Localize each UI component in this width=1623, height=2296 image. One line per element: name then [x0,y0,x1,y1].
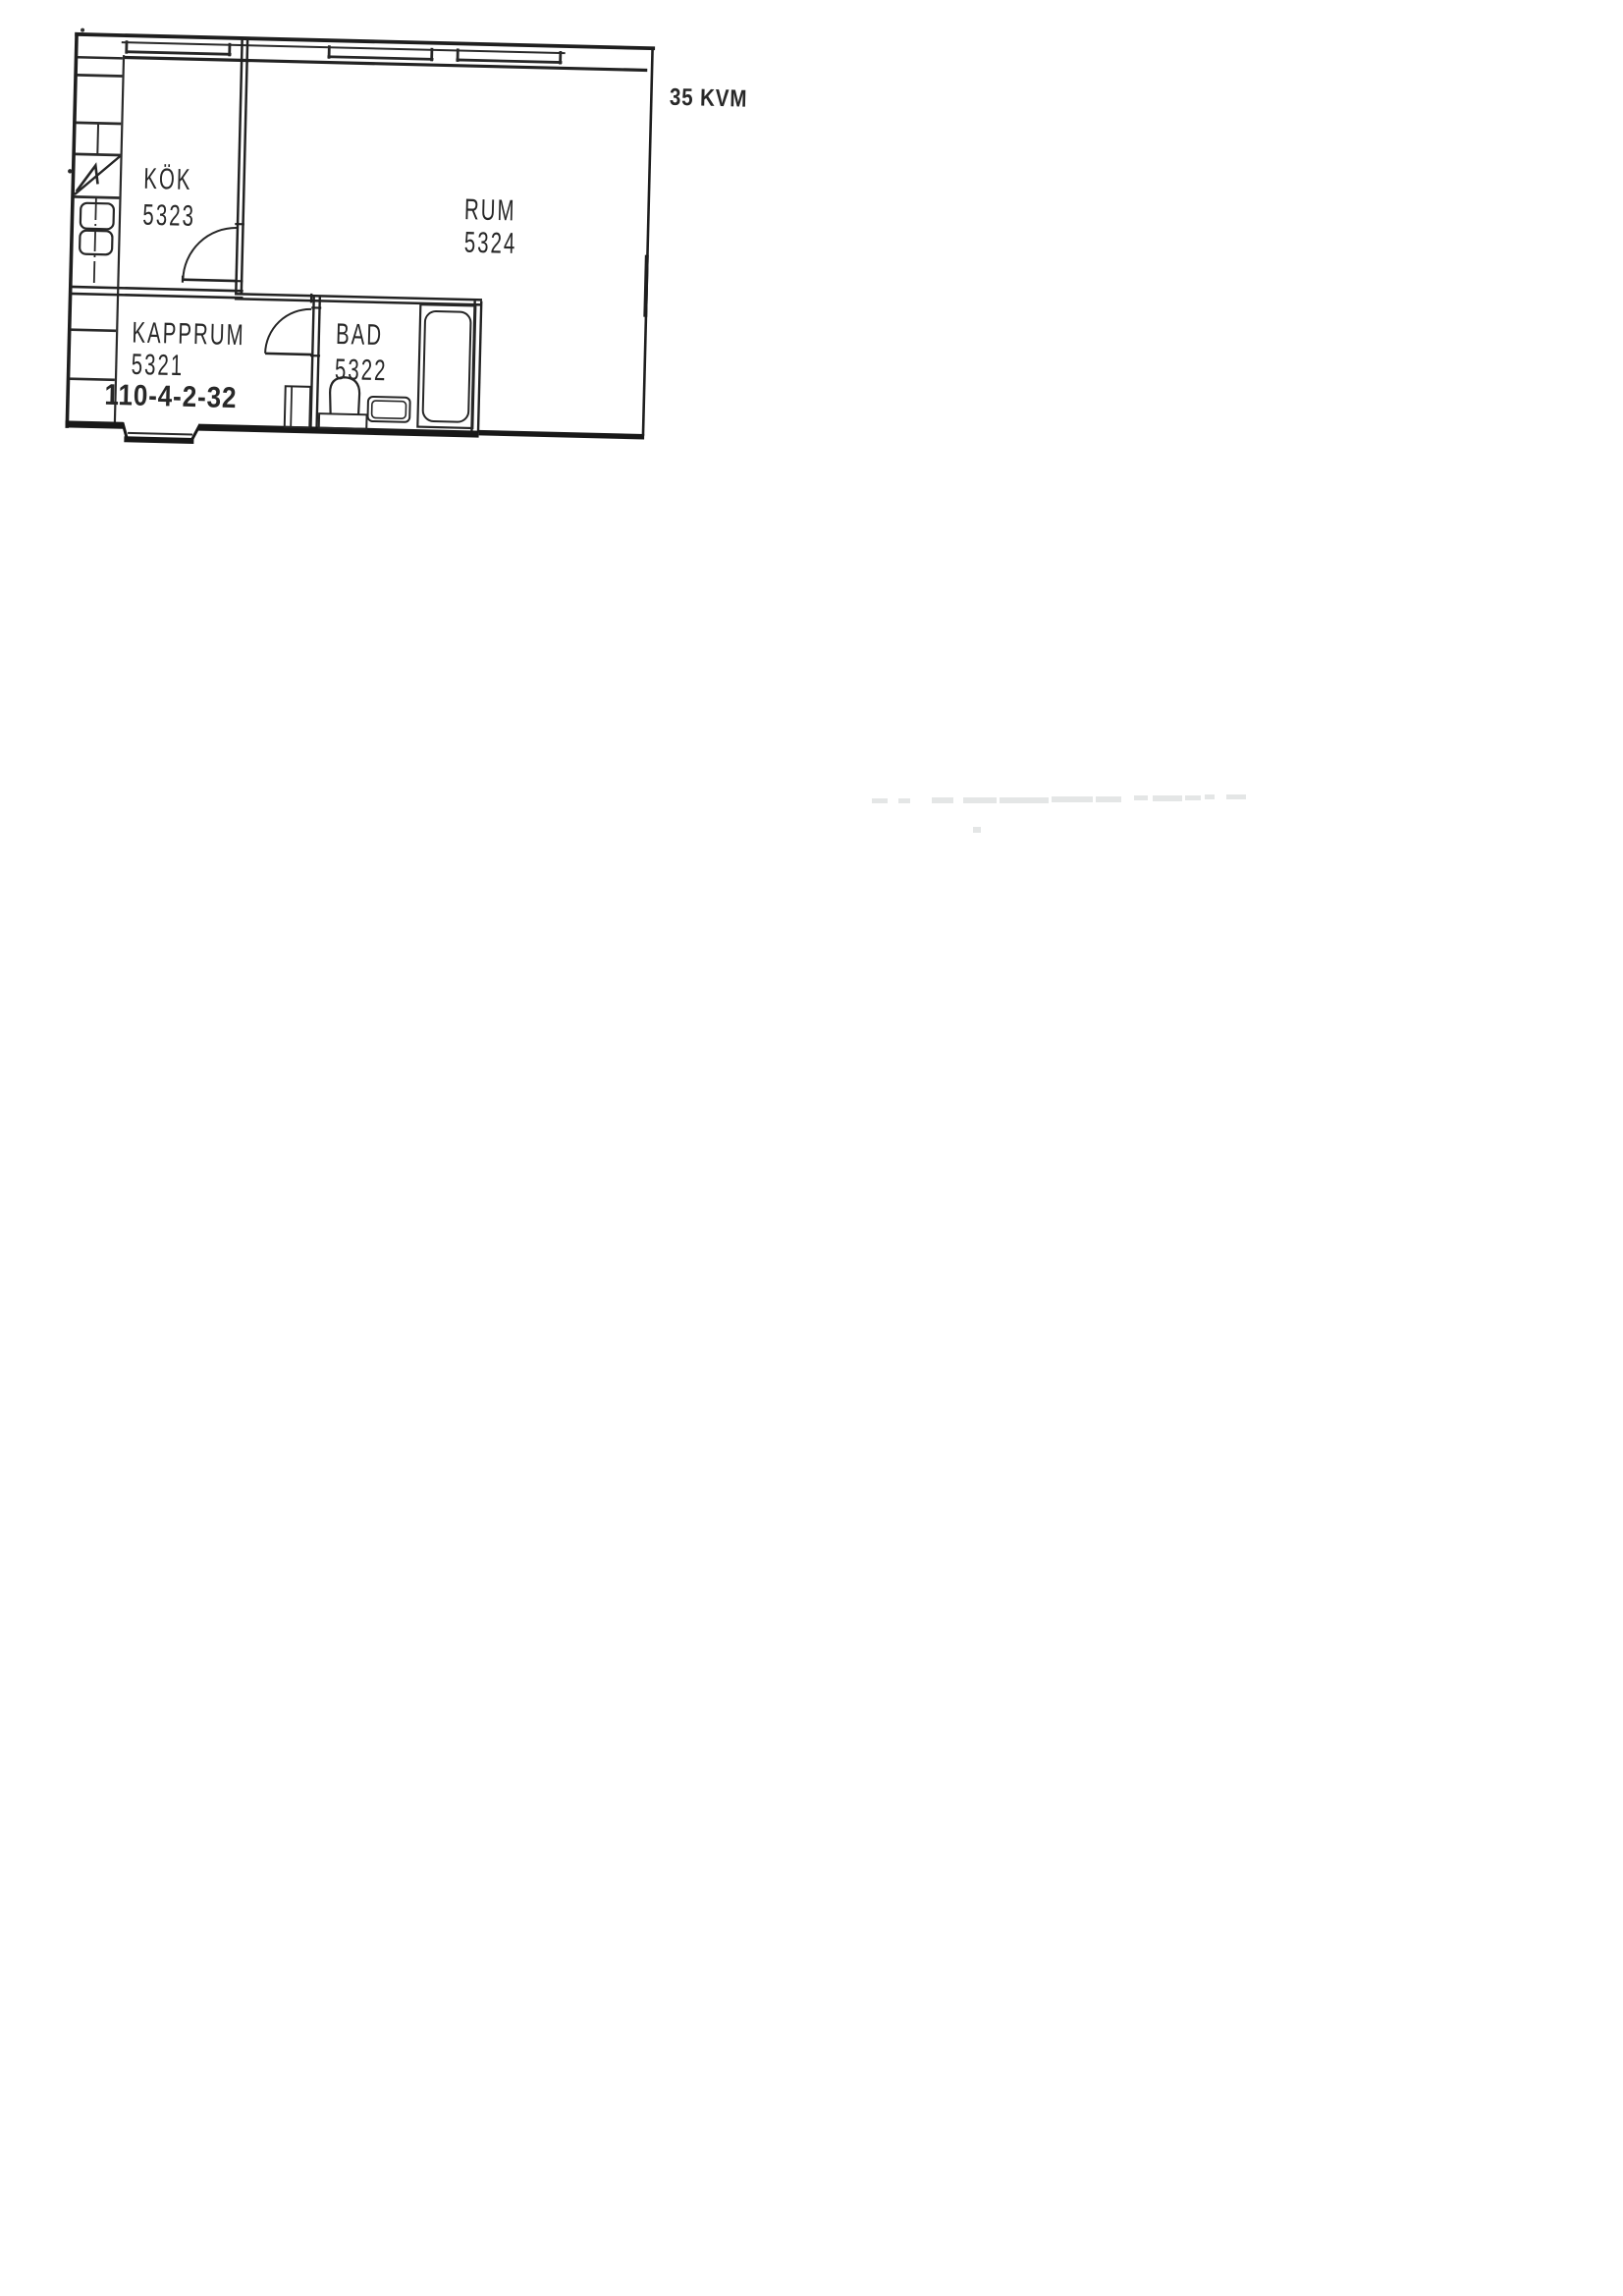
svg-text:5322: 5322 [335,354,388,387]
svg-text:5324: 5324 [463,227,516,260]
svg-text:BAD: BAD [336,318,384,352]
svg-text:5321: 5321 [131,349,184,382]
svg-text:KAPPRUM: KAPPRUM [132,317,245,353]
svg-text:5323: 5323 [142,199,195,233]
svg-text:110-4-2-32: 110-4-2-32 [104,378,238,413]
svg-text:KÖK: KÖK [143,163,192,196]
svg-text:RUM: RUM [464,193,516,227]
svg-text:35 KVM: 35 KVM [670,83,748,112]
